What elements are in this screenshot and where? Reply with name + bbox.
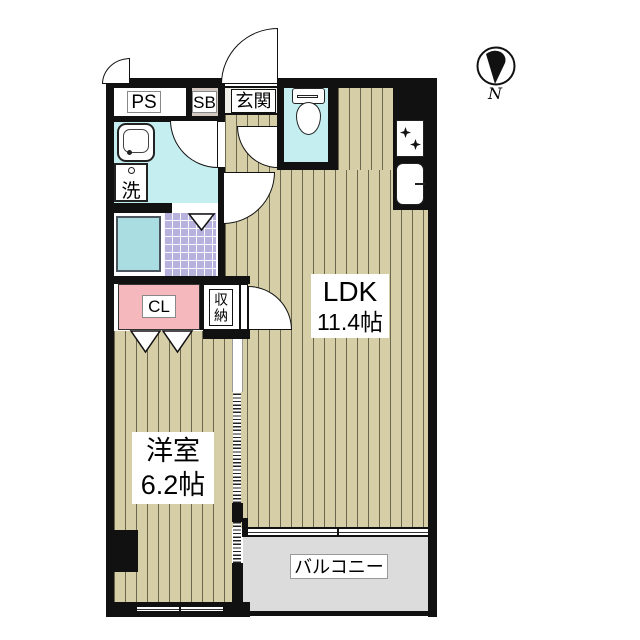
storage-label: 収納: [209, 289, 233, 326]
ldk-name: LDK: [323, 276, 377, 308]
bath-folding-door-icon: [189, 214, 214, 230]
compass-north-icon: [478, 48, 515, 85]
north-text: N: [488, 84, 502, 103]
balcony-text: バルコニー: [294, 558, 384, 576]
entrance-label: 玄関: [231, 89, 276, 113]
entrance-text: 玄関: [236, 92, 272, 110]
compass-north-label: N: [483, 84, 507, 103]
ldk-size: 11.4帖: [317, 308, 383, 336]
closet-label: CL: [142, 295, 176, 318]
sb-label: SB: [192, 91, 217, 113]
ldk-label: LDK 11.4帖: [311, 274, 389, 338]
ps-text: PS: [131, 93, 156, 112]
floor-plan: 洗: [0, 0, 640, 640]
closet-text: CL: [148, 298, 170, 315]
ps-label: PS: [127, 91, 161, 113]
balcony-label: バルコニー: [290, 554, 388, 579]
closet-folding-door-icon: [163, 331, 192, 352]
closet-folding-door-icon: [131, 331, 160, 352]
sb-text: SB: [193, 94, 216, 111]
western-room-size: 6.2帖: [141, 468, 206, 502]
western-room-label: 洋室 6.2帖: [132, 432, 214, 504]
western-room-name: 洋室: [146, 434, 200, 468]
storage-text: 収納: [214, 292, 228, 324]
